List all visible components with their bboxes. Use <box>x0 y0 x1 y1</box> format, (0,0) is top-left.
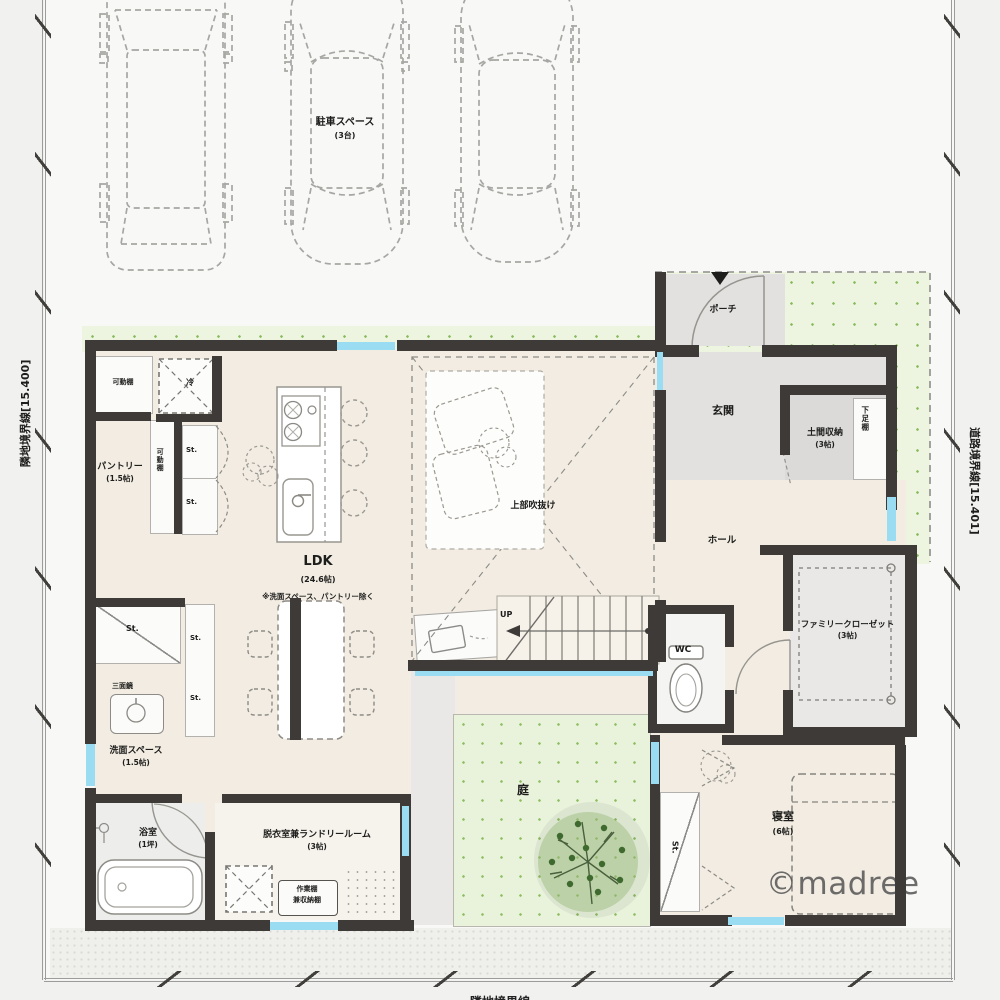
wall-segment <box>722 735 905 745</box>
wall-segment <box>648 724 734 733</box>
ldk-label: LDK (24.6帖) ※洗面スペース、パントリー除く <box>238 554 398 605</box>
storage-label-washroom-box: St. <box>126 624 139 634</box>
wc-label: WC <box>668 645 698 657</box>
wall-segment <box>85 412 151 421</box>
window <box>337 342 395 350</box>
hall-label: ホール <box>700 535 744 547</box>
washroom-label: 洗面スペース (1.5帖) <box>96 746 176 769</box>
wall-segment <box>780 385 886 395</box>
storage-label-pantry-1: St. <box>186 446 197 455</box>
window <box>270 922 338 930</box>
bedroom-label: 寝室 (6帖) <box>748 810 818 839</box>
wall-segment <box>725 605 734 647</box>
wall-segment <box>762 345 886 357</box>
window <box>415 671 653 676</box>
floor-plan: 隣地境界線[15.400] 道路境界線[15.401] 隣地境界線 <box>0 0 1000 1000</box>
window <box>657 352 663 390</box>
wall-segment <box>85 340 96 744</box>
wall-segment <box>886 345 897 510</box>
wall-segment <box>648 605 657 733</box>
wall-segment <box>85 788 96 931</box>
genkan-label: 玄関 <box>698 404 748 418</box>
wall-segment <box>85 920 270 931</box>
wall-segment <box>85 598 185 607</box>
wall-segment <box>895 745 906 920</box>
fcl-label: ファミリークローゼット (3帖) <box>790 620 905 642</box>
wall-segment <box>785 915 906 926</box>
storage-label-washcol-1: St. <box>190 634 201 643</box>
wall-segment <box>212 356 222 420</box>
storage-label-washcol-2: St. <box>190 694 201 703</box>
wall-segment <box>174 420 182 534</box>
wall-segment <box>648 605 734 614</box>
wall-segment <box>85 340 337 351</box>
laundry-label: 脱衣室兼ランドリールーム (3帖) <box>232 830 402 853</box>
wall-segment <box>783 555 793 631</box>
wall-segment <box>655 272 666 348</box>
garden-label: 庭 <box>508 783 538 799</box>
wall-segment <box>290 598 301 740</box>
wall-segment <box>905 545 917 737</box>
wall-segment <box>760 545 917 555</box>
wall-segment <box>725 690 734 733</box>
window <box>728 917 784 925</box>
porch-label: ポーチ <box>698 305 748 317</box>
wall-segment <box>655 390 666 542</box>
wall-segment <box>222 794 411 803</box>
wall-segment <box>397 340 660 351</box>
wall-segment <box>780 395 790 455</box>
window <box>651 742 659 784</box>
wall-segment <box>650 915 732 926</box>
shoe-shelf-label: 下足棚 <box>860 406 870 432</box>
window <box>402 806 409 856</box>
wall-segment <box>408 660 658 671</box>
wall-segment <box>85 794 182 803</box>
wall-segment <box>783 690 793 734</box>
movable-shelf-top-label: 可動棚 <box>100 378 146 387</box>
window <box>887 497 896 541</box>
storage-label-pantry-2: St. <box>186 498 197 507</box>
bathroom-label: 浴室 (1坪) <box>118 828 178 851</box>
wall-segment <box>156 414 222 422</box>
entrance-marker-icon <box>711 272 729 285</box>
window <box>86 744 95 786</box>
doma-label: 土間収納 (3帖) <box>790 428 860 451</box>
movable-shelf-column-label: 可動棚 <box>155 448 164 472</box>
storage-label-bedroom: St. <box>669 841 679 854</box>
wall-segment <box>205 832 215 922</box>
